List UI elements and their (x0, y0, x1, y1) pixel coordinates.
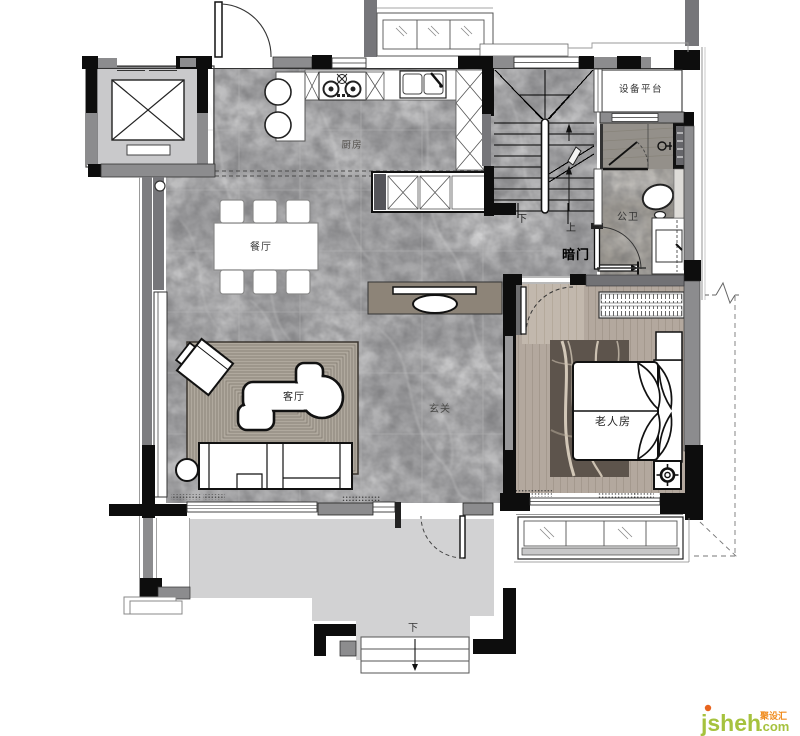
svg-text:公卫: 公卫 (617, 212, 639, 223)
svg-text:餐厅: 餐厅 (250, 240, 272, 253)
svg-text:下: 下 (517, 214, 527, 225)
svg-text:玄关: 玄关 (429, 402, 451, 415)
svg-text:厨房: 厨房 (341, 139, 362, 151)
svg-text:老人房: 老人房 (595, 415, 631, 428)
svg-text:.com: .com (759, 719, 789, 734)
svg-text:客厅: 客厅 (283, 390, 305, 403)
svg-text:上: 上 (566, 222, 576, 234)
svg-text:jsheh: jsheh (700, 710, 761, 736)
svg-text:下: 下 (408, 623, 418, 634)
svg-text:暗门: 暗门 (562, 247, 590, 262)
svg-text:聚设汇: 聚设汇 (759, 710, 787, 721)
svg-text:设备平台: 设备平台 (619, 83, 663, 95)
